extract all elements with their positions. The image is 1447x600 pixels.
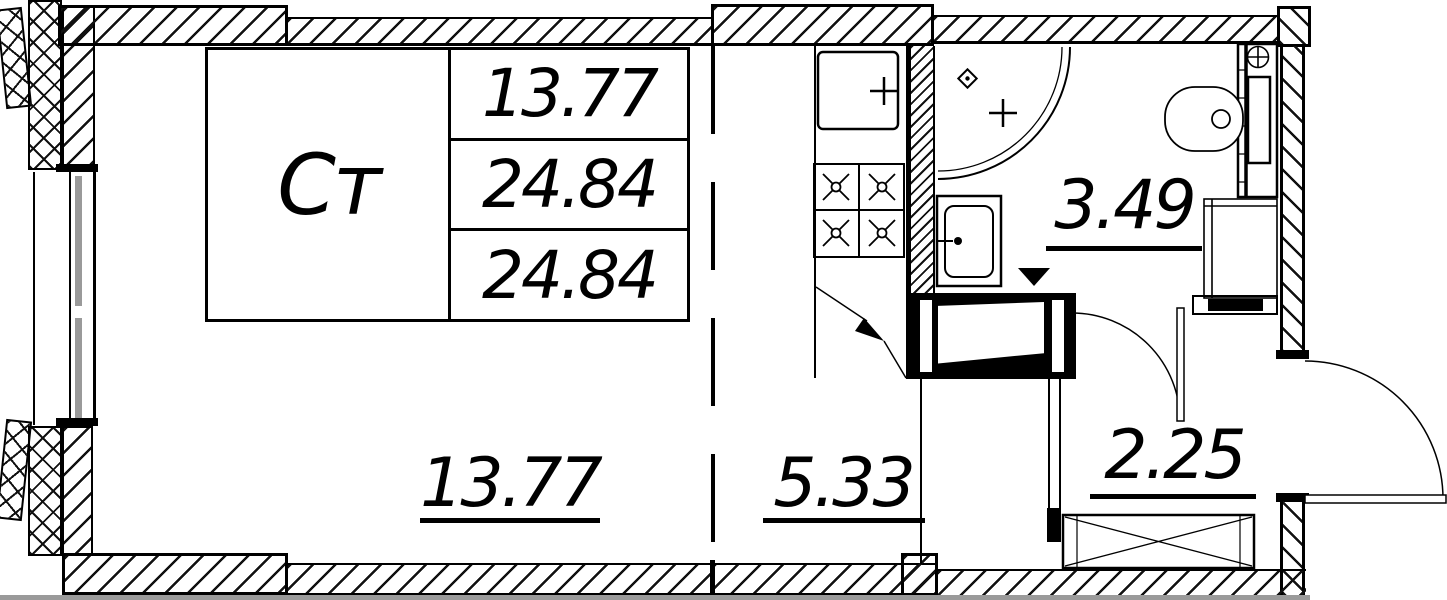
- window-jamb-top: [56, 164, 98, 172]
- stamp-value-1: 13.77: [482, 55, 656, 132]
- kitchen-counter-edge: [814, 46, 816, 378]
- window-jamb-bottom: [56, 418, 98, 426]
- stamp-row-area-1: 13.77: [451, 50, 687, 141]
- entrance-door: [1305, 361, 1446, 503]
- bottom-wall-segment-2: [288, 563, 713, 596]
- window-line-outer: [33, 172, 35, 425]
- window-line-mid: [69, 172, 71, 425]
- kitchen-sink-icon: [818, 52, 898, 129]
- stamp-value-3: 24.84: [482, 237, 656, 314]
- top-wall-segment-3: [711, 4, 934, 46]
- door-direction-triangle: [1018, 268, 1050, 286]
- window-line-inner: [93, 172, 96, 425]
- top-wall-segment-4: [934, 15, 1279, 44]
- left-wall-bottom: [62, 426, 93, 556]
- window-sash-1: [75, 176, 82, 306]
- hall-area-label: 2.25: [1084, 422, 1264, 490]
- wash-basin-icon: [937, 196, 1001, 286]
- duct-shaft-icon: [1238, 44, 1277, 197]
- apartment-type-label: Ст: [277, 143, 379, 227]
- top-wall-segment-1: [58, 5, 288, 46]
- kitchen-area-label: 5.33: [758, 450, 928, 518]
- washer-wall-bar-fill: [1208, 299, 1263, 311]
- shower-faucet-cross: [989, 99, 1017, 127]
- hall-partition-line-2: [1059, 378, 1061, 513]
- top-wall-segment-2: [288, 17, 713, 46]
- bathroom-door-block-slot-left: [920, 300, 932, 372]
- baseline-strip: [0, 595, 1310, 600]
- stamp-row-area-2: 24.84: [451, 141, 687, 232]
- kitchen-area-underline: [763, 518, 925, 523]
- kitchen-arrow: [816, 287, 906, 378]
- toilet-icon: [1165, 77, 1270, 163]
- bottom-wall-junction: [710, 560, 715, 598]
- vent-icon: [1247, 46, 1269, 68]
- stamp-row-area-3: 24.84: [451, 231, 687, 319]
- right-wall-cap-upper: [1276, 350, 1309, 359]
- kitchen-bath-partition: [906, 46, 935, 295]
- left-wall-insulation-bottom: [28, 426, 62, 556]
- hall-partition-line-1: [1048, 378, 1050, 513]
- floor-plan: Ст 13.77 24.84 24.84 13.77 5.33 3.49 2.2…: [0, 0, 1447, 600]
- hall-area-underline: [1090, 494, 1256, 499]
- living-room-area-underline: [420, 518, 600, 523]
- bottom-wall-segment-1: [62, 553, 288, 595]
- room-divider-dashed: [711, 46, 715, 563]
- living-room-area-label: 13.77: [408, 450, 612, 518]
- stove-icon: [814, 164, 904, 257]
- right-wall-upper: [1280, 46, 1305, 353]
- bathroom-area-underline: [1046, 246, 1202, 251]
- hall-partition-post: [1047, 508, 1061, 542]
- bottom-wall-segment-4: [938, 569, 1306, 598]
- washing-machine-icon: [1204, 199, 1277, 298]
- window-sash-2: [75, 318, 82, 422]
- stamp-value-2: 24.84: [482, 146, 656, 223]
- top-right-corner: [1277, 6, 1311, 47]
- wardrobe-icon: [1063, 515, 1254, 568]
- bathroom-area-label: 3.49: [1038, 172, 1210, 240]
- stamp-table: Ст 13.77 24.84 24.84: [205, 47, 690, 322]
- bathroom-door: [1072, 308, 1184, 421]
- bathroom-door-block-slot-right: [1052, 300, 1064, 372]
- left-wall-insulation-top: [28, 0, 62, 170]
- stamp-type-cell: Ст: [208, 50, 451, 319]
- corner-shower-icon: [938, 47, 1070, 179]
